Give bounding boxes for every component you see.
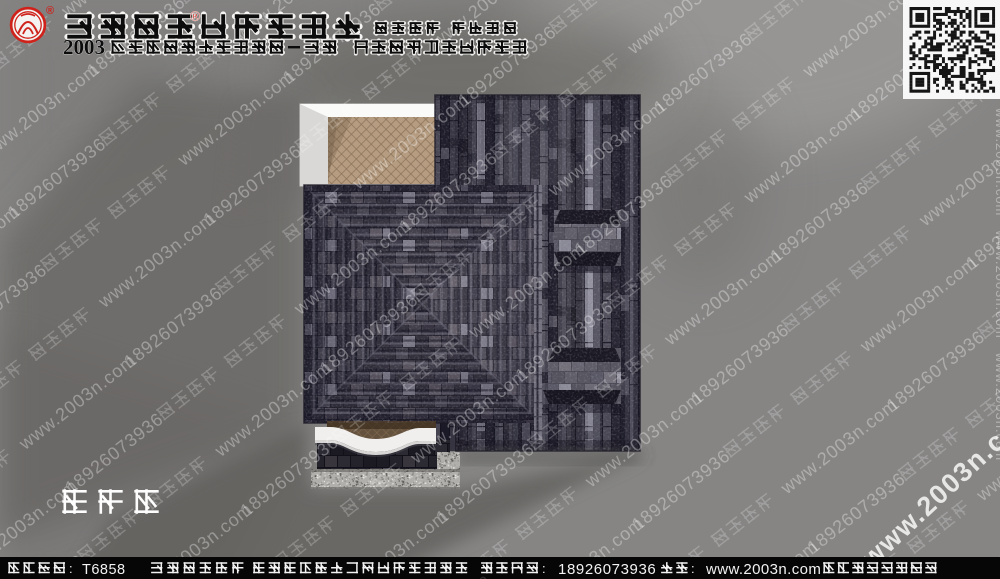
svg-text::: : [542, 561, 546, 576]
svg-text::: : [691, 561, 695, 576]
svg-text:2003: 2003 [63, 35, 105, 59]
svg-text:T6858: T6858 [82, 562, 126, 578]
svg-text:www.2003n.com: www.2003n.com [705, 561, 821, 578]
svg-text:18926073936: 18926073936 [558, 561, 656, 578]
svg-text::: : [69, 561, 73, 576]
svg-text:www.2003n.com www.2003n.com ww: www.2003n.com www.2003n.com www.2003n.co… [993, 107, 1000, 461]
svg-text:®: ® [46, 5, 54, 17]
svg-text:®: ® [190, 8, 201, 24]
